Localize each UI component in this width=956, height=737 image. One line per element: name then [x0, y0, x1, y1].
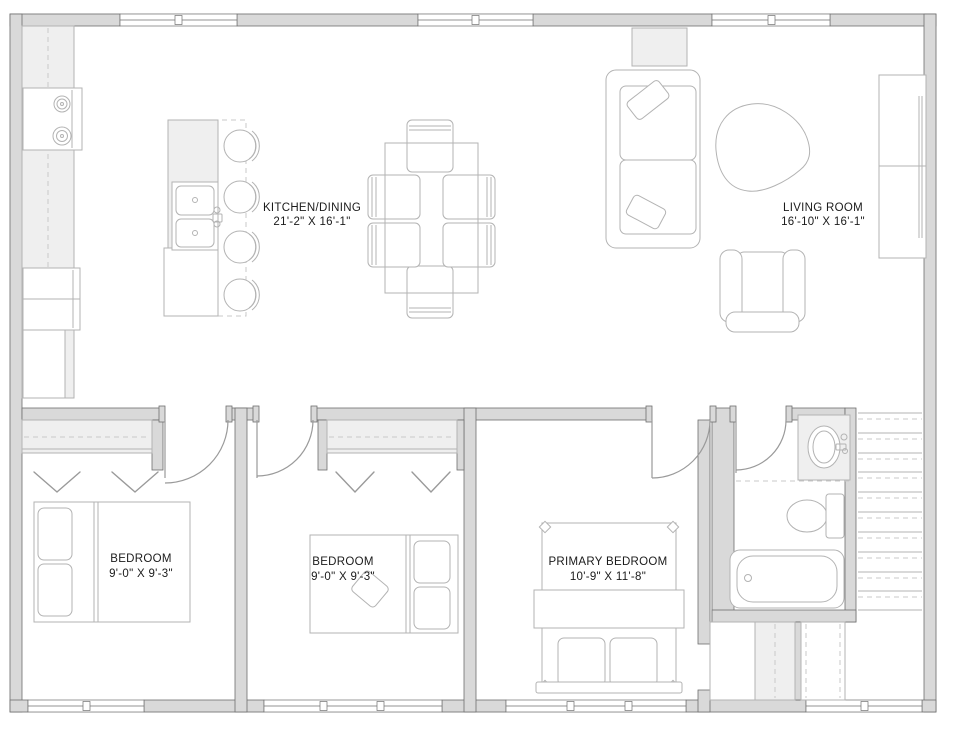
primary-bed — [534, 521, 684, 693]
under-stair-closets — [710, 622, 845, 700]
primary-bedroom-label: PRIMARY BEDROOM — [548, 556, 667, 568]
refrigerator — [23, 268, 80, 330]
dining-chair — [407, 120, 453, 172]
island-sink — [172, 182, 222, 250]
toilet — [787, 494, 844, 538]
living-room-dims: 16'-10" X 16'-1" — [781, 216, 865, 228]
bedroom-middle-door — [257, 420, 313, 478]
bar-stools — [224, 130, 259, 311]
window-bedroom-middle — [264, 700, 442, 712]
bifold-door-icon — [412, 472, 450, 492]
range-stove — [23, 88, 82, 150]
bedroom-left-label: BEDROOM — [110, 553, 172, 565]
bifold-door-icon — [336, 472, 374, 492]
bar-stool — [224, 231, 259, 263]
dining-chair — [443, 223, 495, 267]
bedroom-middle-closet — [327, 420, 457, 492]
bifold-door-icon — [112, 472, 158, 492]
bar-stool — [224, 279, 259, 311]
bed-middle — [310, 535, 458, 633]
floor-plan-page: KITCHEN/DINING 21'-2" X 16'-1" LIVING RO… — [0, 0, 956, 737]
bedroom-left-dims: 9'-0" X 9'-3" — [109, 568, 173, 580]
bedroom-middle-dims: 9'-0" X 9'-3" — [311, 571, 375, 583]
bathroom-door — [736, 420, 786, 473]
dining-chair — [407, 266, 453, 318]
bedroom-middle-label: BEDROOM — [312, 556, 374, 568]
dining-chair — [368, 175, 420, 219]
window-primary-bedroom — [506, 700, 686, 712]
bathtub — [730, 550, 844, 608]
console-table — [632, 28, 687, 66]
dining-chairs — [368, 120, 495, 318]
dining-chair — [368, 223, 420, 267]
base-cabinet — [23, 330, 65, 398]
bar-stool — [224, 130, 259, 162]
stairs — [858, 413, 922, 610]
window-top-kitchen — [120, 14, 237, 26]
kitchen-dining-dims: 21'-2" X 16'-1" — [273, 216, 350, 228]
window-stair-landing — [806, 700, 922, 712]
media-console — [879, 75, 926, 258]
armchair — [720, 250, 805, 332]
bar-stool — [224, 181, 259, 213]
bedroom-left-closet — [22, 420, 158, 492]
primary-bedroom-dims: 10'-9" X 11'-8" — [570, 571, 646, 583]
window-top-dining — [418, 14, 533, 26]
bedroom-left-door — [165, 420, 228, 483]
dining-chair — [443, 175, 495, 219]
window-top-living — [712, 14, 830, 26]
living-room-label: LIVING ROOM — [783, 202, 863, 214]
sofa — [606, 70, 700, 248]
floor-plan-drawing: KITCHEN/DINING 21'-2" X 16'-1" LIVING RO… — [0, 0, 956, 737]
bifold-door-icon — [34, 472, 80, 492]
kitchen-dining-label: KITCHEN/DINING — [263, 202, 361, 214]
coffee-table — [716, 104, 810, 192]
window-bedroom-left — [28, 700, 144, 712]
sink-vanity — [736, 415, 850, 481]
